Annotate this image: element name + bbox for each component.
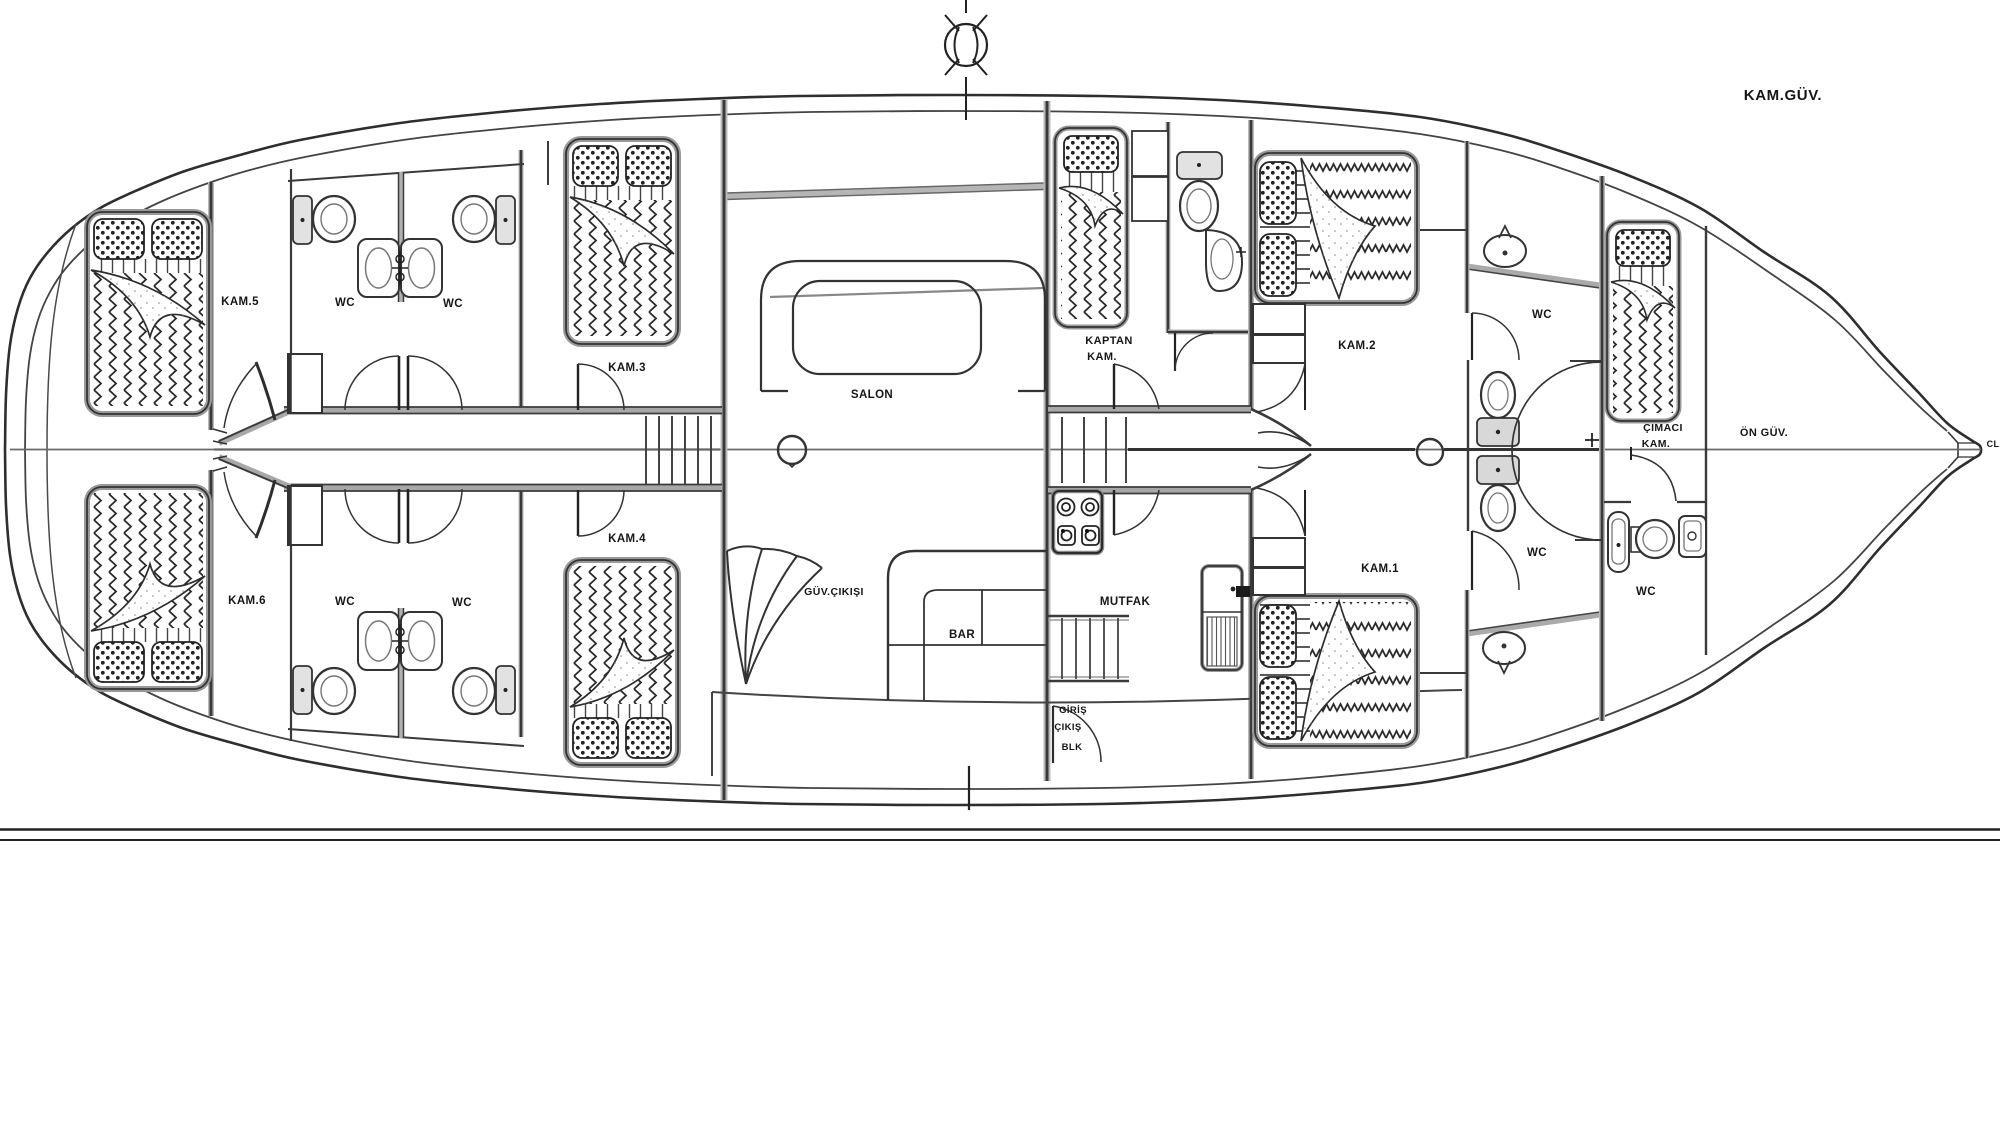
svg-text:KAPTAN: KAPTAN — [1085, 335, 1132, 347]
svg-text:KAM.1: KAM.1 — [1361, 563, 1399, 575]
svg-text:BLK: BLK — [1062, 742, 1083, 753]
svg-text:WC: WC — [335, 596, 355, 608]
svg-text:KAM.3: KAM.3 — [608, 362, 646, 374]
svg-text:KAM.GÜV.: KAM.GÜV. — [1744, 87, 1822, 104]
svg-text:WC: WC — [443, 298, 463, 310]
svg-text:WC: WC — [1636, 586, 1656, 598]
svg-text:KAM.6: KAM.6 — [228, 595, 266, 607]
svg-text:ÖN GÜV.: ÖN GÜV. — [1740, 426, 1788, 439]
svg-text:KAM.2: KAM.2 — [1338, 340, 1376, 352]
svg-text:GİRİŞ: GİRİŞ — [1059, 705, 1087, 716]
svg-text:KAM.: KAM. — [1642, 438, 1670, 450]
svg-text:SALON: SALON — [851, 389, 893, 401]
svg-text:WC: WC — [452, 597, 472, 609]
svg-text:GÜV.ÇIKIŞI: GÜV.ÇIKIŞI — [804, 585, 864, 598]
svg-text:CL: CL — [1987, 439, 2000, 449]
svg-text:ÇIKIŞ: ÇIKIŞ — [1054, 722, 1081, 733]
svg-text:WC: WC — [1527, 547, 1547, 559]
svg-text:KAM.: KAM. — [1087, 351, 1117, 363]
svg-text:MUTFAK: MUTFAK — [1100, 596, 1151, 608]
svg-text:WC: WC — [1532, 309, 1552, 321]
svg-text:BAR: BAR — [949, 629, 975, 641]
svg-text:ÇIMACI: ÇIMACI — [1643, 422, 1683, 434]
svg-text:KAM.4: KAM.4 — [608, 533, 646, 545]
svg-text:KAM.5: KAM.5 — [221, 296, 259, 308]
svg-text:WC: WC — [335, 297, 355, 309]
